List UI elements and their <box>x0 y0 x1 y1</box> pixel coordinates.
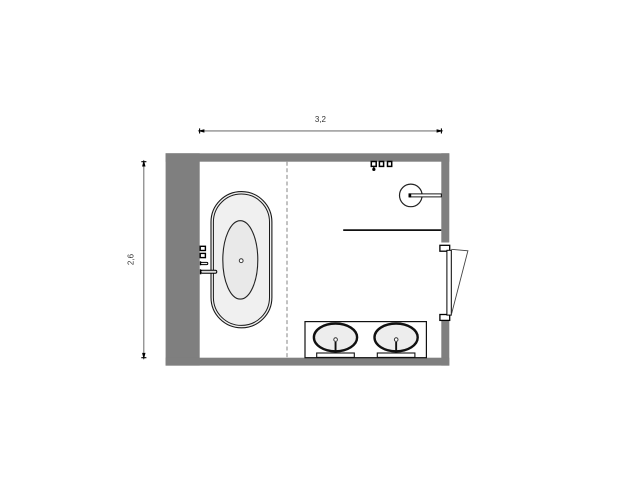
svg-text:2,6: 2,6 <box>127 253 136 265</box>
svg-text:3,2: 3,2 <box>315 115 327 124</box>
